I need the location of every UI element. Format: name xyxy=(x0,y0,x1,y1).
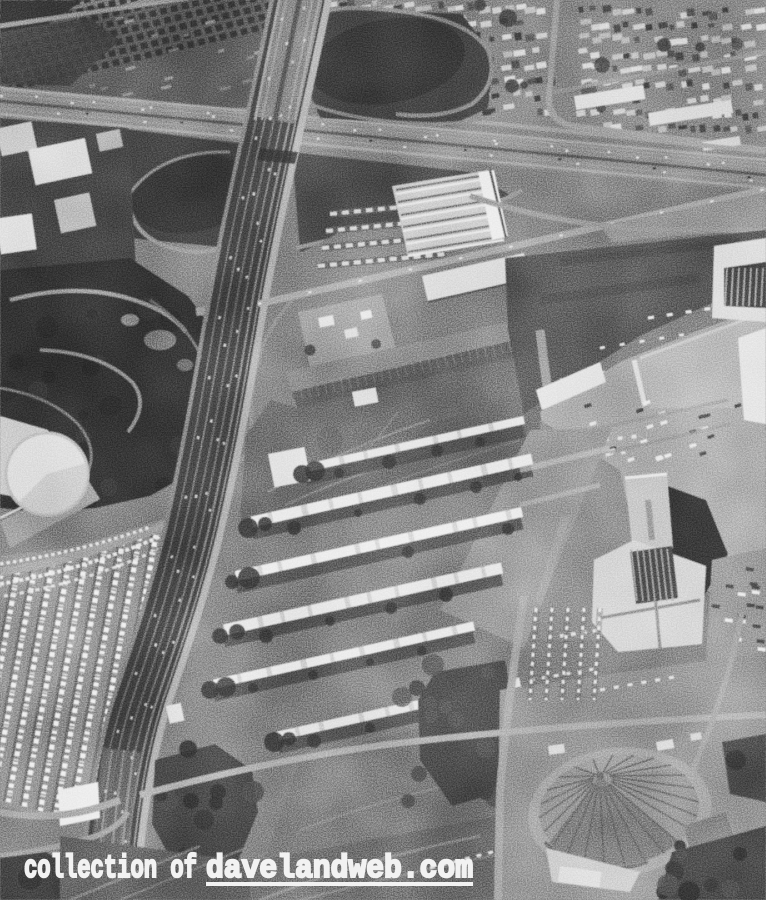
svg-text:collection of: collection of xyxy=(24,850,197,887)
svg-text:davelandweb.com: davelandweb.com xyxy=(206,850,473,887)
